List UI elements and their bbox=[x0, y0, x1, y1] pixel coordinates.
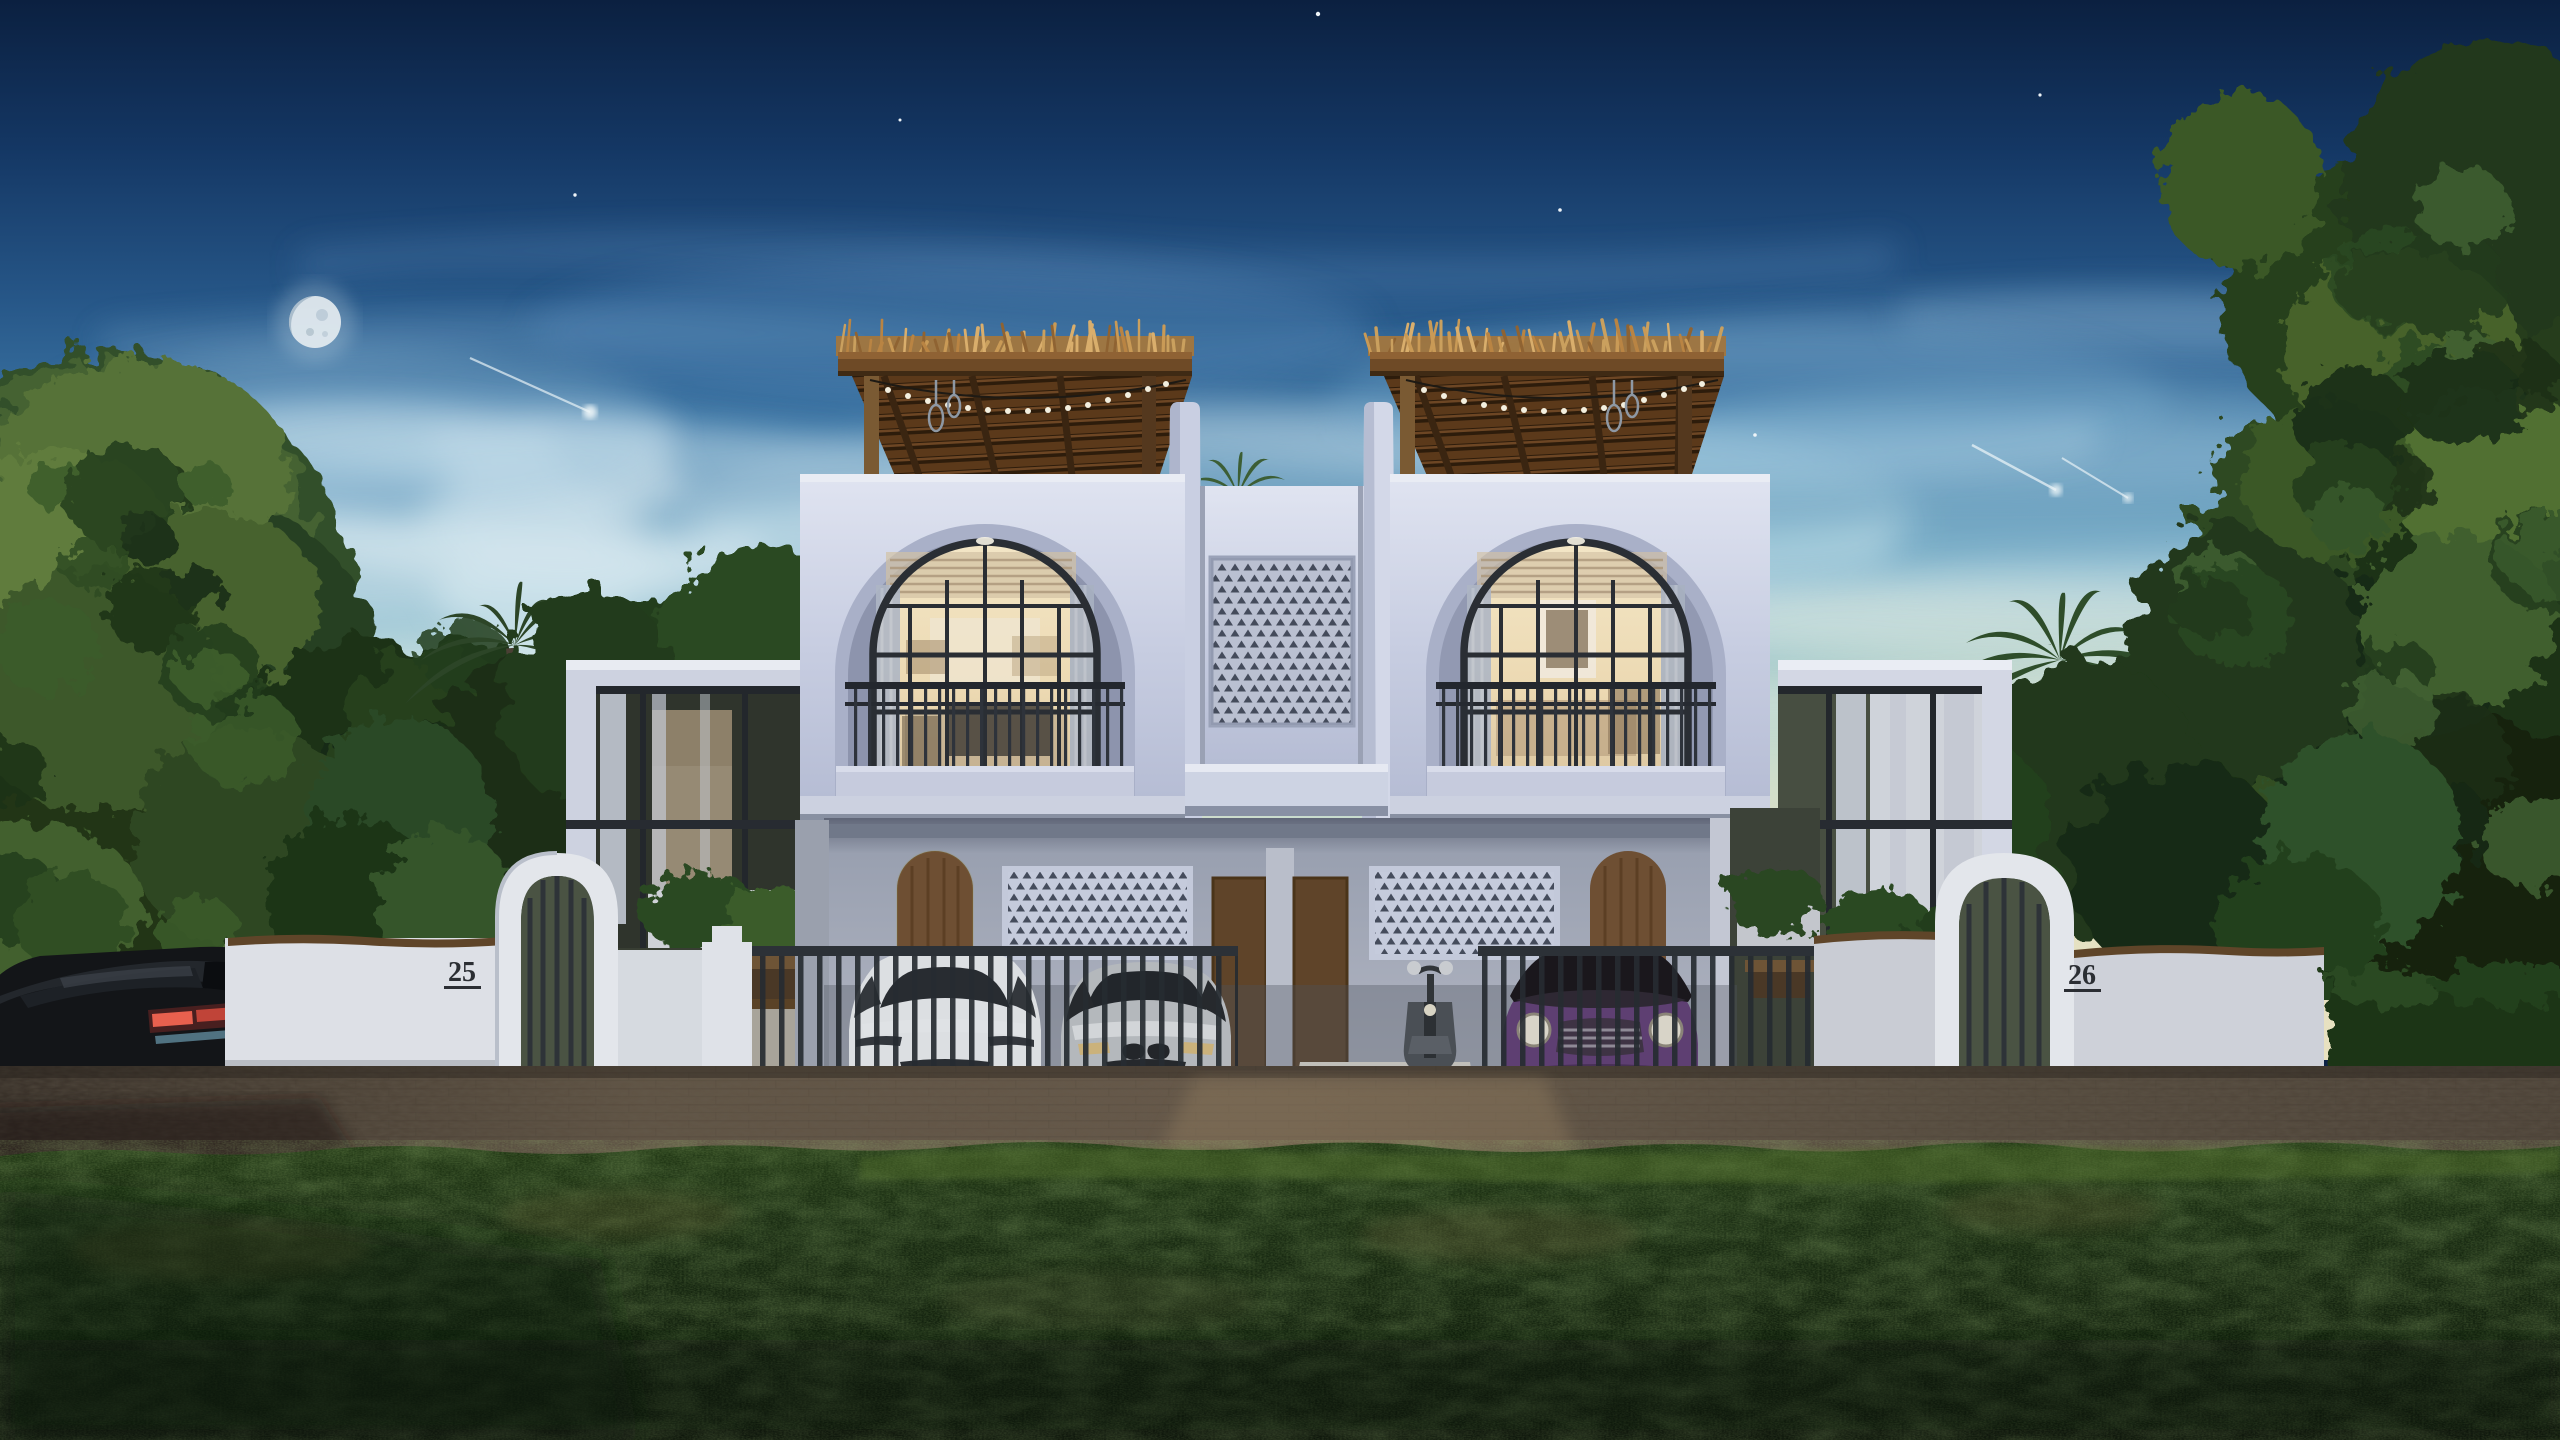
svg-text:26: 26 bbox=[2068, 960, 2096, 991]
svg-text:25: 25 bbox=[448, 957, 476, 988]
